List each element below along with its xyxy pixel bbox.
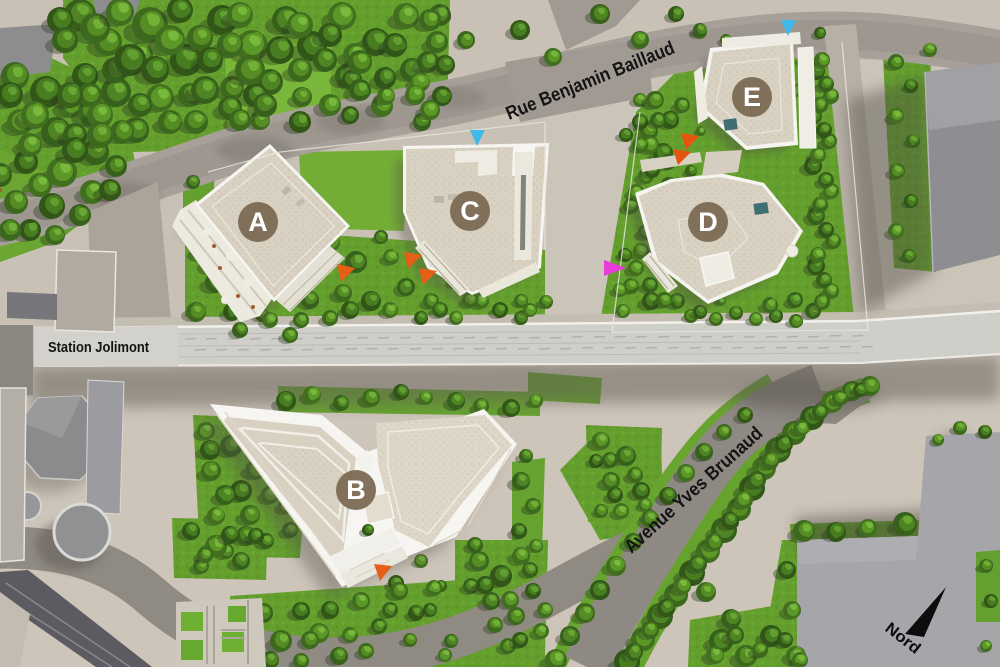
svg-text:D: D [698,207,718,237]
svg-text:C: C [460,196,480,226]
svg-text:Station Jolimont: Station Jolimont [48,340,149,356]
svg-text:B: B [346,475,366,505]
svg-text:E: E [743,82,761,112]
svg-text:A: A [248,207,268,237]
